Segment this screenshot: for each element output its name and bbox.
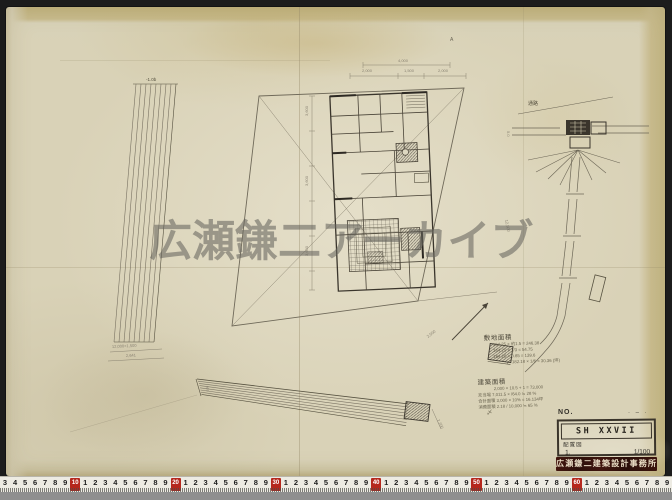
note-lines: 2,000 × 10.5 + 1 = 73,000充当場 7,011.5 × /… xyxy=(478,381,629,416)
note-lines: 164.25 × 約1.5 = 246.38164.25 × 1/3 = 54.… xyxy=(484,338,615,367)
drawing-name: 配置図 xyxy=(563,440,583,448)
road-width-dim: 5.0 xyxy=(506,131,511,137)
bottom-strip-drawing: 900 1,200 xyxy=(70,379,445,432)
titleblock-marks: · – · xyxy=(628,410,649,416)
drawing-code: SH XXVII xyxy=(561,422,652,439)
titleblock-no-label: NO. xyxy=(558,409,573,416)
dim-label: 1,500 xyxy=(404,68,415,73)
left-strip-label: -1.0b xyxy=(146,77,157,82)
area-notes-building: 建築面積 2,000 × 10.5 + 1 = 73,000充当場 7,011.… xyxy=(477,371,628,416)
dim-label: 900 xyxy=(205,386,210,392)
sheet-number: 1. xyxy=(565,449,583,456)
archive-watermark: 広瀬鎌二アーカイブ xyxy=(149,221,533,264)
dim-label: 3,600 xyxy=(304,105,309,116)
dim-label: 2,000 xyxy=(438,68,449,73)
left-strip-dim: 12,000×1,500 xyxy=(112,343,138,349)
archival-scan: -1.0b 12,000×1,500 2,641 xyxy=(0,0,672,500)
dimension-lines: 3,600 3,600 3,600 2,000 1,500 2,000 4,00… xyxy=(304,37,512,339)
drawing-scale: 1/100 xyxy=(634,448,650,455)
left-strip-dim: 2,641 xyxy=(126,352,137,358)
dim-label: 3,600 xyxy=(304,175,309,186)
dim-label: 2,500 xyxy=(426,328,438,339)
archive-stamp: 広瀬鎌二建築設計事務所 xyxy=(556,457,657,471)
title-block: SH XXVII 配置図 1. 1/100 xyxy=(557,418,656,456)
apex-mark: A xyxy=(450,37,454,43)
dim-label: 1,200 xyxy=(436,418,445,430)
road-label: 通路 xyxy=(528,100,538,107)
dim-label: 2,000 xyxy=(362,68,373,73)
dim-label: 4,000 xyxy=(398,58,409,63)
area-notes-site: 敷地面積 164.25 × 約1.5 = 246.38164.25 × 1/3 … xyxy=(483,328,614,367)
scan-mat-strip xyxy=(0,492,672,500)
